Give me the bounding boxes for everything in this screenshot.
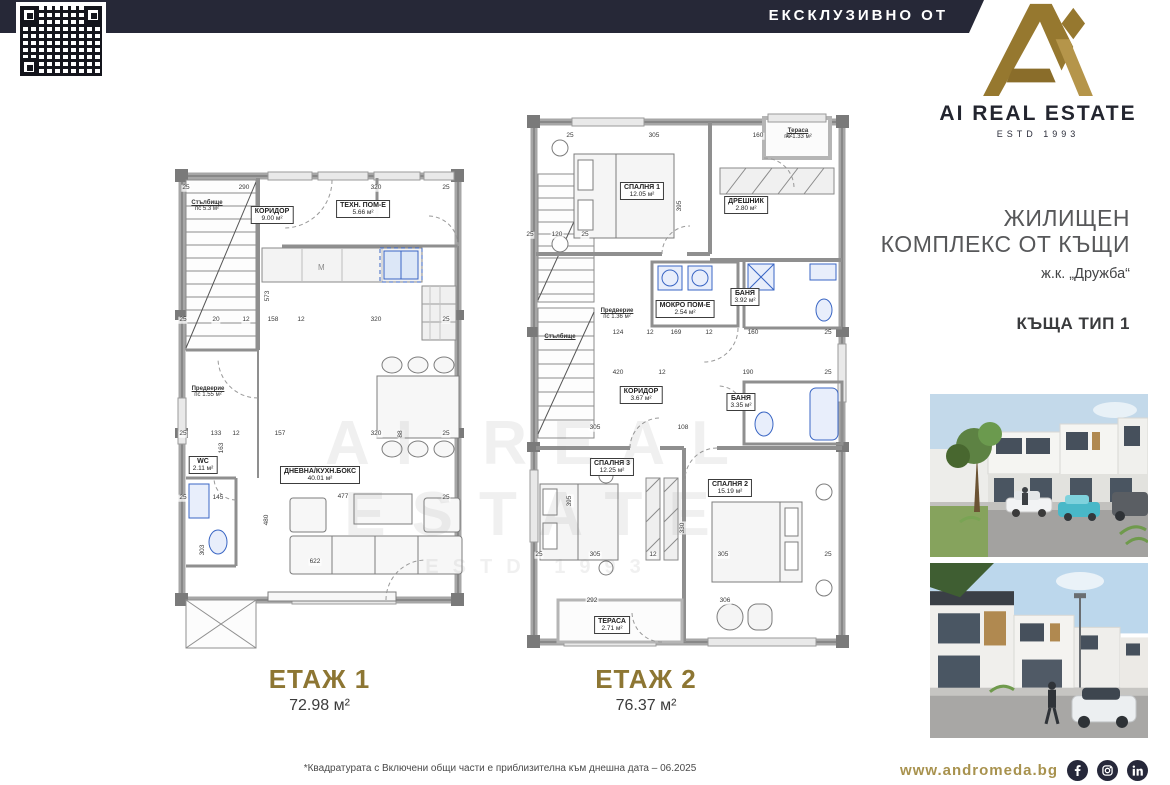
kitchen-mark: М: [318, 263, 325, 272]
contact-row: www.andromeda.bg: [900, 760, 1148, 781]
flyer-page: ЕКСКЛУЗИВНО ОТ AI REAL ESTATE ESTD 1993 …: [0, 0, 1170, 785]
dimension-label: 20: [211, 317, 220, 324]
linkedin-icon[interactable]: [1127, 760, 1148, 781]
qr-finder-icon: [20, 6, 38, 24]
dimension-label: 25: [823, 370, 832, 377]
dimension-label: 290: [238, 185, 251, 192]
project-location: ж.к. „Дружба“: [800, 266, 1130, 282]
room-label-stairs: Стълбище пс 5.3 м²: [191, 200, 222, 212]
disclaimer-text: *Квадратурата с Включени общи части е пр…: [150, 763, 850, 774]
dimension-label: 395: [677, 200, 684, 213]
dimension-label: 320: [370, 431, 383, 438]
dimension-label: 480: [264, 514, 271, 527]
dimension-label: 120: [551, 232, 564, 239]
dimension-label: 25: [823, 552, 832, 559]
dimension-label: 25: [580, 232, 589, 239]
ai-real-estate-logo-icon: [979, 0, 1097, 98]
dimension-label: 12: [648, 552, 657, 559]
dimension-label: 25: [441, 185, 450, 192]
dimension-label: 395: [567, 495, 574, 508]
dimension-label: 169: [670, 330, 683, 337]
instagram-icon[interactable]: [1097, 760, 1118, 781]
room-label-wet-room: МОКРО ПОМ-Е 2.54 м²: [656, 300, 715, 318]
room-label-tech: ТЕХН. ПОМ-Е 5.66 м²: [336, 200, 390, 218]
logo-estd: ESTD 1993: [918, 129, 1158, 139]
room-label-terrace-top: Тераса пс 1.33 м²: [784, 128, 811, 140]
dimension-label: 12: [231, 431, 240, 438]
room-label-wc: WC 2.11 м²: [189, 456, 218, 474]
dimension-label: 292: [586, 598, 599, 605]
project-title-line2: КОМПЛЕКС ОТ КЪЩИ: [800, 231, 1130, 257]
dimension-label: 320: [370, 185, 383, 192]
dimension-label: 88: [398, 429, 405, 438]
dimension-label: 124: [612, 330, 625, 337]
dimension-label: 12: [645, 330, 654, 337]
room-label-terrace-bottom: ТЕРАСА 2.71 м²: [594, 616, 630, 634]
room-label-bedroom2: СПАЛНЯ 2 15.19 м²: [708, 479, 752, 497]
street-render-image: [930, 563, 1148, 738]
dimension-label: 25: [441, 495, 450, 502]
house-type-label: КЪЩА ТИП 1: [800, 314, 1130, 334]
dimension-label: 190: [742, 370, 755, 377]
dimension-label: 25: [181, 185, 190, 192]
dimension-label: 25: [178, 317, 187, 324]
dimension-label: 157: [274, 431, 287, 438]
dimension-label: 305: [648, 133, 661, 140]
room-label-bath1: БАНЯ 3.92 м²: [730, 288, 759, 306]
qr-finder-icon: [84, 6, 102, 24]
floor2-plan: СПАЛНЯ 1 12.05 м² Тераса пс 1.33 м² ДРЕШ…: [512, 112, 857, 668]
dimension-label: 303: [200, 544, 207, 557]
dimension-label: 12: [704, 330, 713, 337]
dimension-label: 573: [265, 290, 272, 303]
floor2-area: 76.37 м²: [510, 697, 782, 715]
project-photo-1: [930, 394, 1148, 557]
dimension-label: 160: [752, 133, 765, 140]
project-photo-2: [930, 563, 1148, 738]
floor2-caption: ЕТАЖ 2 76.37 м²: [510, 664, 782, 715]
dimension-label: 320: [370, 317, 383, 324]
qr-code: [16, 2, 106, 80]
dimension-label: 163: [219, 442, 226, 455]
dimension-label: 12: [296, 317, 305, 324]
dimension-label: 305: [717, 552, 730, 559]
room-label-vestibule: Предверие пс 1.55 м²: [192, 386, 225, 398]
dimension-label: 25: [534, 552, 543, 559]
dimension-label: 12: [241, 317, 250, 324]
dimension-label: 133: [210, 431, 223, 438]
room-label-bedroom3: СПАЛНЯ 3 12.25 м²: [590, 458, 634, 476]
exclusive-banner: ЕКСКЛУЗИВНО ОТ: [0, 0, 984, 33]
floor2-title: ЕТАЖ 2: [510, 664, 782, 695]
qr-finder-icon: [20, 58, 38, 76]
floor1-title: ЕТАЖ 1: [172, 664, 467, 695]
website-link[interactable]: www.andromeda.bg: [900, 762, 1058, 779]
dimension-label: 330: [680, 522, 687, 535]
project-info: ЖИЛИЩЕН КОМПЛЕКС ОТ КЪЩИ ж.к. „Дружба“ К…: [800, 205, 1130, 334]
logo-name: AI REAL ESTATE: [918, 102, 1158, 126]
room-label-stairs2: Стълбище: [544, 334, 575, 340]
floor2-drawing: [512, 112, 857, 668]
room-label-vestibule2: Предверие пс 1.36 м²: [601, 308, 634, 320]
dimension-label: 158: [267, 317, 280, 324]
dimension-label: 25: [441, 431, 450, 438]
dimension-label: 477: [337, 494, 350, 501]
qr-pattern: [20, 6, 102, 76]
room-label-living: ДНЕВНА/КУХН.БОКС 40.01 м²: [280, 466, 360, 484]
dimension-label: 25: [178, 495, 187, 502]
room-label-closet: ДРЕШНИК 2.80 м²: [724, 196, 768, 214]
floor1-plan: М Стълбище пс 5.3 м² КОРИДОР 9.00 м² ТЕХ…: [172, 148, 467, 663]
dimension-label: 622: [309, 559, 322, 566]
room-label-corridor: КОРИДОР 9.00 м²: [251, 206, 294, 224]
facebook-icon[interactable]: [1067, 760, 1088, 781]
townhouses-render-image: [930, 394, 1148, 557]
dimension-label: 25: [441, 317, 450, 324]
floor1-area: 72.98 м²: [172, 697, 467, 715]
dimension-label: 305: [589, 552, 602, 559]
dimension-label: 420: [612, 370, 625, 377]
agency-logo: AI REAL ESTATE ESTD 1993: [918, 0, 1158, 139]
floor1-drawing: М: [172, 148, 467, 663]
project-title-line1: ЖИЛИЩЕН: [800, 205, 1130, 231]
room-label-bedroom1: СПАЛНЯ 1 12.05 м²: [620, 182, 664, 200]
dimension-label: 160: [747, 330, 760, 337]
dimension-label: 25: [525, 232, 534, 239]
dimension-label: 305: [589, 425, 602, 432]
dimension-label: 306: [719, 598, 732, 605]
dimension-label: 108: [677, 425, 690, 432]
dimension-label: 25: [178, 431, 187, 438]
floor1-caption: ЕТАЖ 1 72.98 м²: [172, 664, 467, 715]
room-label-bath2: БАНЯ 3.35 м²: [726, 393, 755, 411]
room-label-corridor2: КОРИДОР 3.67 м²: [620, 386, 663, 404]
dimension-label: 145: [212, 495, 225, 502]
dimension-label: 12: [657, 370, 666, 377]
dimension-label: 25: [565, 133, 574, 140]
